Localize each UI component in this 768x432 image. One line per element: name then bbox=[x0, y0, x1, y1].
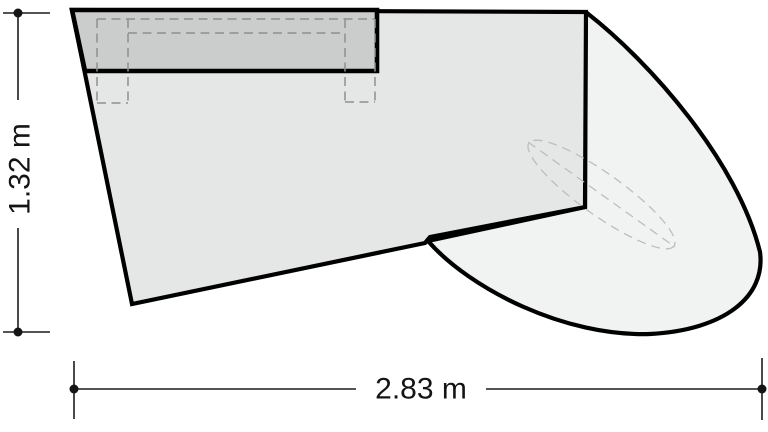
height-dimension-label: 1.32 m bbox=[4, 123, 37, 215]
height-dim-dot-top bbox=[14, 9, 23, 18]
width-dimension: 2.83 m bbox=[70, 358, 767, 420]
width-dimension-label: 2.83 m bbox=[375, 373, 467, 406]
height-dimension: 1.32 m bbox=[3, 9, 50, 337]
height-dim-dot-bottom bbox=[14, 328, 23, 337]
width-dim-dot-right bbox=[758, 385, 767, 394]
plan-view-drawing: 1.32 m 2.83 m bbox=[0, 0, 768, 432]
width-dim-dot-left bbox=[70, 385, 79, 394]
technical-drawing-canvas: 1.32 m 2.83 m bbox=[0, 0, 768, 432]
